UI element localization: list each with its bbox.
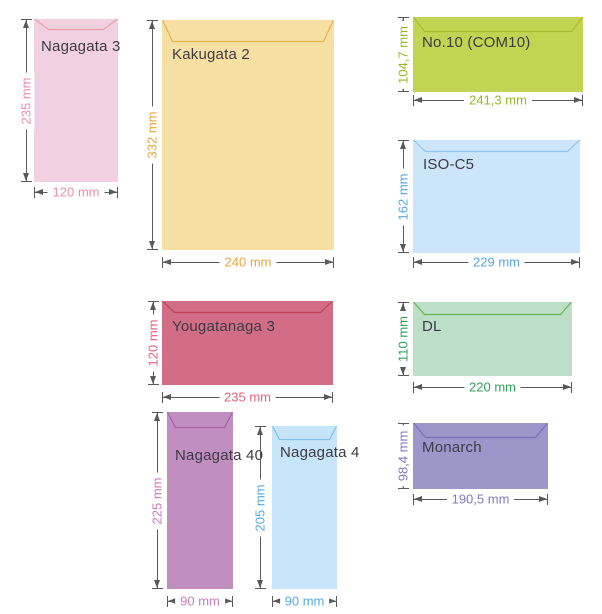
width-dimension: 220 mm bbox=[413, 382, 572, 393]
height-value: 332 mm bbox=[145, 107, 160, 164]
envelope-size-diagram: Nagagata 3 235 mm 120 mm Kakugata 2 bbox=[0, 0, 602, 614]
envelope-flap-icon bbox=[34, 19, 118, 31]
envelope-shape: Kakugata 2 bbox=[162, 20, 334, 250]
height-value: 104,7 mm bbox=[396, 21, 411, 89]
height-dimension: 120 mm bbox=[148, 301, 159, 385]
dimension-end-tick bbox=[336, 596, 337, 607]
dimension-end-tick bbox=[398, 375, 409, 376]
envelope-name: Kakugata 2 bbox=[172, 47, 250, 64]
arrow-left-icon bbox=[414, 384, 422, 390]
height-dimension: 225 mm bbox=[152, 412, 163, 589]
arrow-left-icon bbox=[35, 189, 43, 195]
dimension-end-tick bbox=[332, 392, 333, 403]
dimension-end-tick bbox=[152, 588, 163, 589]
envelope-shape: Monarch bbox=[413, 423, 548, 489]
width-dimension: 229 mm bbox=[413, 257, 580, 268]
height-value: 162 mm bbox=[396, 168, 411, 225]
width-value: 190,5 mm bbox=[447, 492, 515, 507]
dimension-end-tick bbox=[571, 382, 572, 393]
arrow-up-icon bbox=[150, 302, 156, 310]
width-dimension: 190,5 mm bbox=[413, 494, 548, 505]
height-dimension: 332 mm bbox=[147, 20, 158, 250]
arrow-left-icon bbox=[163, 259, 171, 265]
envelope-flap-icon bbox=[167, 412, 233, 429]
envelope-name: Nagagata 4 bbox=[280, 445, 360, 462]
height-dimension: 104,7 mm bbox=[398, 17, 409, 92]
width-dimension: 241,3 mm bbox=[413, 95, 583, 106]
height-value: 98,4 mm bbox=[396, 426, 411, 487]
envelope-name: No.10 (COM10) bbox=[422, 35, 530, 52]
width-value: 90 mm bbox=[280, 594, 330, 609]
arrow-up-icon bbox=[154, 413, 160, 421]
envelope-shape: Yougatanaga 3 bbox=[162, 301, 333, 385]
arrow-left-icon bbox=[414, 97, 422, 103]
arrow-down-icon bbox=[400, 367, 406, 375]
envelope-name: Nagagata 40 bbox=[175, 448, 263, 465]
envelope-shape: DL bbox=[413, 302, 572, 376]
dimension-end-tick bbox=[398, 91, 409, 92]
height-dimension: 110 mm bbox=[398, 302, 409, 376]
arrow-right-icon bbox=[325, 259, 333, 265]
width-dimension: 120 mm bbox=[34, 187, 118, 198]
arrow-right-icon bbox=[224, 598, 232, 604]
dimension-end-tick bbox=[582, 95, 583, 106]
dimension-end-tick bbox=[148, 384, 159, 385]
dimension-end-tick bbox=[398, 252, 409, 253]
dimension-end-tick bbox=[547, 494, 548, 505]
envelope-name: Monarch bbox=[422, 440, 482, 457]
envelope-flap-icon bbox=[272, 426, 337, 441]
envelope-flap-icon bbox=[413, 140, 580, 153]
arrow-down-icon bbox=[23, 173, 29, 181]
height-dimension: 162 mm bbox=[398, 140, 409, 253]
arrow-down-icon bbox=[400, 244, 406, 252]
envelope-name: Nagagata 3 bbox=[41, 39, 121, 56]
dimension-end-tick bbox=[21, 181, 32, 182]
width-value: 241,3 mm bbox=[464, 93, 532, 108]
height-dimension: 205 mm bbox=[255, 426, 266, 589]
arrow-up-icon bbox=[400, 141, 406, 149]
arrow-right-icon bbox=[563, 384, 571, 390]
arrow-left-icon bbox=[414, 496, 422, 502]
envelope-flap-icon bbox=[413, 17, 583, 33]
envelope-flap-icon bbox=[162, 20, 334, 43]
envelope-name: DL bbox=[422, 319, 442, 336]
arrow-left-icon bbox=[414, 259, 422, 265]
width-value: 235 mm bbox=[219, 390, 276, 405]
arrow-right-icon bbox=[571, 259, 579, 265]
width-value: 229 mm bbox=[468, 255, 525, 270]
arrow-down-icon bbox=[257, 580, 263, 588]
arrow-down-icon bbox=[150, 376, 156, 384]
dimension-end-tick bbox=[232, 596, 233, 607]
envelope-shape: No.10 (COM10) bbox=[413, 17, 583, 92]
height-dimension: 235 mm bbox=[21, 19, 32, 182]
dimension-end-tick bbox=[255, 588, 266, 589]
width-dimension: 240 mm bbox=[162, 257, 334, 268]
arrow-up-icon bbox=[257, 427, 263, 435]
envelope-shape: Nagagata 3 bbox=[34, 19, 118, 182]
arrow-right-icon bbox=[539, 496, 547, 502]
dimension-end-tick bbox=[117, 187, 118, 198]
envelope-name: ISO-C5 bbox=[423, 157, 474, 174]
arrow-up-icon bbox=[400, 303, 406, 311]
envelope-shape: Nagagata 40 bbox=[167, 412, 233, 589]
height-value: 225 mm bbox=[150, 472, 165, 529]
dimension-end-tick bbox=[333, 257, 334, 268]
arrow-left-icon bbox=[163, 394, 171, 400]
arrow-down-icon bbox=[154, 580, 160, 588]
envelope-flap-icon bbox=[162, 301, 333, 314]
envelope-name: Yougatanaga 3 bbox=[172, 319, 275, 336]
arrow-right-icon bbox=[324, 394, 332, 400]
dimension-end-tick bbox=[398, 488, 409, 489]
height-value: 120 mm bbox=[146, 315, 161, 372]
width-dimension: 90 mm bbox=[272, 596, 337, 607]
height-dimension: 98,4 mm bbox=[398, 423, 409, 489]
envelope-shape: Nagagata 4 bbox=[272, 426, 337, 589]
arrow-down-icon bbox=[149, 241, 155, 249]
width-value: 120 mm bbox=[48, 185, 105, 200]
width-dimension: 90 mm bbox=[167, 596, 233, 607]
width-value: 220 mm bbox=[464, 380, 521, 395]
arrow-right-icon bbox=[574, 97, 582, 103]
height-value: 205 mm bbox=[253, 479, 268, 536]
envelope-flap-icon bbox=[413, 423, 548, 439]
envelope-flap-icon bbox=[413, 302, 572, 316]
envelope-shape: ISO-C5 bbox=[413, 140, 580, 253]
width-value: 240 mm bbox=[220, 255, 277, 270]
width-value: 90 mm bbox=[175, 594, 225, 609]
height-value: 110 mm bbox=[396, 311, 411, 367]
dimension-end-tick bbox=[147, 249, 158, 250]
dimension-end-tick bbox=[579, 257, 580, 268]
height-value: 235 mm bbox=[19, 72, 34, 129]
width-dimension: 235 mm bbox=[162, 392, 333, 403]
arrow-up-icon bbox=[149, 21, 155, 29]
arrow-up-icon bbox=[23, 20, 29, 28]
arrow-right-icon bbox=[109, 189, 117, 195]
